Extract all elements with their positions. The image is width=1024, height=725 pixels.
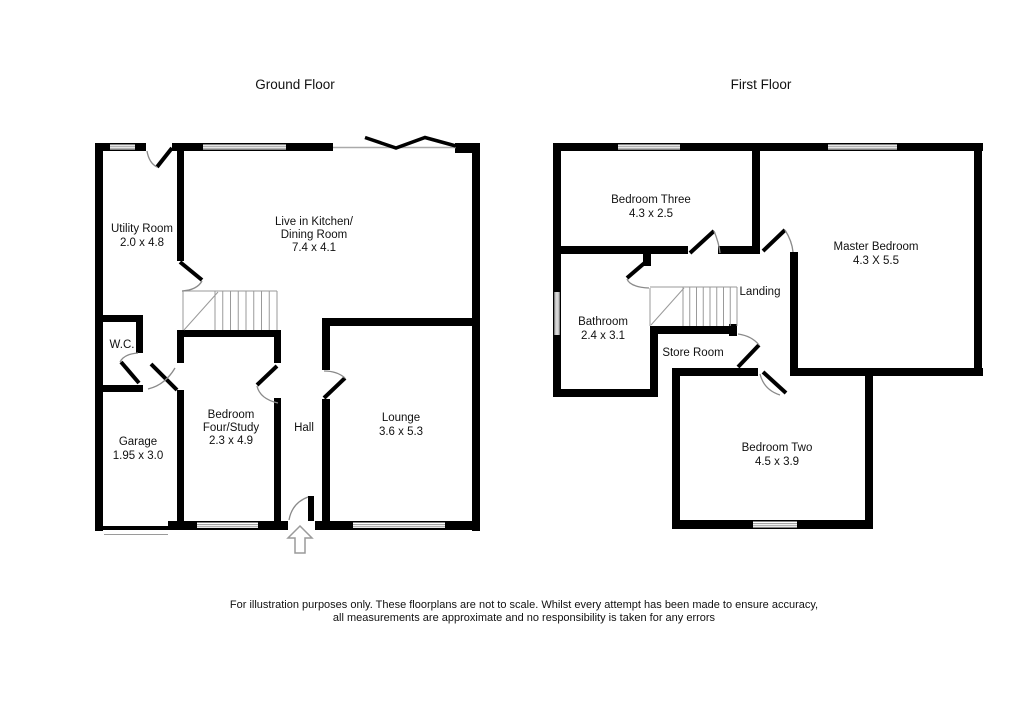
- first-floor-plan: Bedroom Three 4.3 x 2.5 Master Bedroom 4…: [553, 143, 983, 529]
- store-room-door: [738, 334, 759, 367]
- wall-segment: [790, 252, 798, 372]
- ground-floor-title: Ground Floor: [255, 77, 335, 92]
- store-room-label: Store Room: [662, 347, 723, 359]
- master-bedroom-door: [763, 230, 793, 252]
- ground-room-labels: Utility Room 2.0 x 4.8 Live in Kitchen/ …: [110, 216, 424, 462]
- door-leaf: [763, 372, 786, 393]
- first-staircase: [650, 287, 737, 326]
- kitchen-dims: 7.4 x 4.1: [292, 242, 336, 254]
- wall-segment: [322, 399, 330, 521]
- wall-segment: [177, 151, 184, 261]
- landing-label: Landing: [740, 286, 781, 298]
- lounge-door: [324, 371, 345, 398]
- wall-segment: [136, 315, 143, 353]
- disclaimer: For illustration purposes only. These fl…: [230, 599, 818, 624]
- first-interior-walls: [553, 151, 798, 397]
- stair-diagonal: [184, 292, 218, 330]
- hall-label: Hall: [294, 422, 314, 434]
- door-arc: [785, 230, 793, 252]
- lounge-dims: 3.6 x 5.3: [379, 426, 423, 438]
- wall-segment: [650, 326, 737, 334]
- window: [828, 145, 897, 150]
- window: [753, 522, 797, 528]
- wall-segment: [718, 246, 760, 254]
- door-arc: [147, 151, 157, 167]
- bedroom-four-label-2: Four/Study: [203, 422, 259, 434]
- window-glass: [110, 145, 135, 150]
- utility-kitchen-door: [180, 262, 202, 291]
- bedroom-two-dims: 4.5 x 3.9: [755, 456, 799, 468]
- bathroom-door: [627, 260, 649, 288]
- disclaimer-line-2: all measurements are approximate and no …: [333, 612, 716, 624]
- wall-segment: [95, 143, 103, 531]
- utility-room-label: Utility Room: [111, 223, 173, 235]
- stair-diagonal: [651, 288, 684, 325]
- bifold-door-zigzag: [365, 138, 456, 149]
- wall-segment: [274, 398, 281, 521]
- wall-segment: [752, 151, 760, 252]
- disclaimer-line-1: For illustration purposes only. These fl…: [230, 599, 818, 611]
- door-arc: [627, 279, 649, 288]
- window-glass: [828, 145, 897, 150]
- window: [618, 145, 680, 150]
- wc-label: W.C.: [110, 339, 135, 351]
- kitchen-label-2: Dining Room: [281, 229, 347, 241]
- door-leaf: [257, 366, 277, 385]
- ground-interior-walls: [103, 151, 480, 521]
- wall-segment: [103, 385, 143, 392]
- first-floor-title: First Floor: [731, 77, 792, 92]
- door-arc: [324, 371, 345, 378]
- door-arc: [182, 281, 202, 291]
- wall-segment: [672, 368, 758, 376]
- ground-floor-plan: Utility Room 2.0 x 4.8 Live in Kitchen/ …: [95, 138, 480, 554]
- wall-segment: [974, 143, 982, 376]
- wall-segment: [472, 143, 480, 531]
- lounge-label: Lounge: [382, 412, 420, 424]
- wall-segment: [553, 143, 983, 151]
- floorplan-sheet: Ground Floor First Floor: [0, 0, 1024, 725]
- bathroom-dims: 2.4 x 3.1: [581, 330, 625, 342]
- door-leaf: [690, 231, 714, 253]
- bedroom-two-door: [760, 372, 786, 395]
- wall-segment: [790, 368, 983, 376]
- wall-segment: [553, 143, 561, 397]
- kitchen-label: Live in Kitchen/: [275, 216, 354, 228]
- garage-inner-door: [148, 364, 177, 390]
- garage-dims: 1.95 x 3.0: [113, 450, 164, 462]
- window-glass: [753, 522, 797, 528]
- wall-segment: [650, 326, 658, 397]
- floorplan-drawing: Ground Floor First Floor: [0, 0, 1024, 725]
- window-glass: [618, 145, 680, 150]
- front-door: [289, 496, 314, 521]
- window: [197, 523, 258, 529]
- wall-segment: [274, 330, 281, 363]
- door-leaf: [324, 378, 345, 398]
- ground-staircase: [183, 291, 277, 330]
- bedroom-three-label: Bedroom Three: [611, 194, 691, 206]
- bathroom-label: Bathroom: [578, 316, 628, 328]
- bedroom-two-label: Bedroom Two: [742, 442, 813, 454]
- door-leaf: [121, 362, 139, 383]
- window-glass: [555, 292, 560, 335]
- bedroom-three-dims: 4.3 x 2.5: [629, 208, 673, 220]
- door-leaf: [763, 230, 785, 251]
- door-leaf: [627, 260, 648, 278]
- wall-segment: [322, 318, 480, 326]
- wall-segment: [672, 370, 680, 529]
- window: [110, 145, 135, 150]
- wall-segment: [553, 246, 688, 254]
- bedroom-three-door: [690, 231, 720, 253]
- window: [353, 523, 445, 529]
- master-bedroom-label: Master Bedroom: [833, 241, 918, 253]
- bedroom-four-dims: 2.3 x 4.9: [209, 435, 253, 447]
- utility-room-dims: 2.0 x 4.8: [120, 237, 164, 249]
- door-arc: [289, 497, 308, 520]
- wall-segment: [177, 330, 281, 337]
- door-arc: [120, 353, 138, 362]
- wall-segment: [865, 368, 873, 529]
- window: [203, 145, 286, 150]
- ground-outer-walls: [95, 143, 480, 531]
- wc-door: [120, 353, 139, 383]
- door-leaf: [738, 345, 759, 367]
- bedroom-four-door: [257, 366, 278, 403]
- door-arc: [738, 334, 759, 345]
- garage-label: Garage: [119, 436, 157, 448]
- wall-segment: [177, 390, 184, 521]
- door-arc: [714, 231, 720, 253]
- garage-door-opening: [103, 519, 168, 526]
- wall-segment: [322, 318, 330, 370]
- door-leaf: [308, 496, 314, 521]
- master-bedroom-dims: 4.3 X 5.5: [853, 255, 899, 267]
- door-leaf: [180, 262, 202, 280]
- ground-doors: [120, 148, 345, 553]
- wall-segment: [553, 389, 658, 397]
- bedroom-four-label: Bedroom: [208, 409, 255, 421]
- window: [555, 292, 560, 335]
- window-glass: [203, 145, 286, 150]
